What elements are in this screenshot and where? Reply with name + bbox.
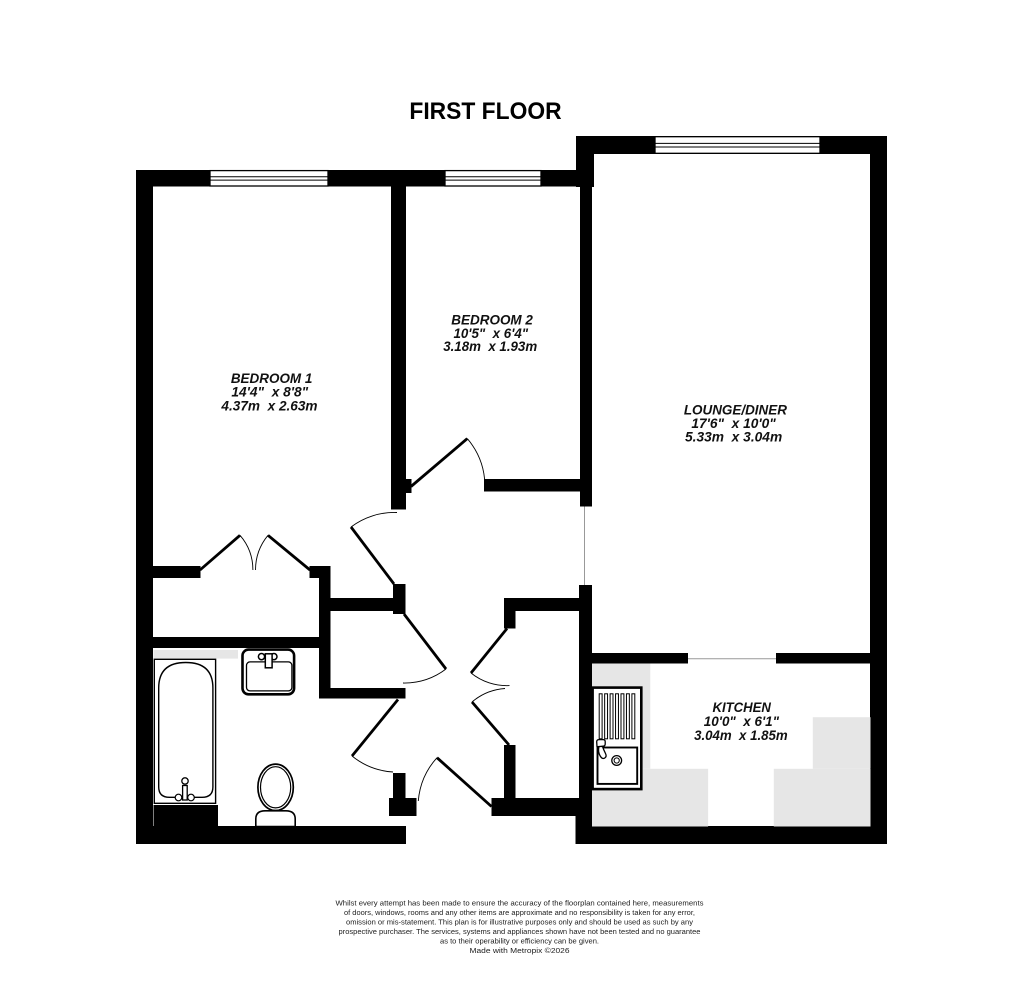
- svg-text:of doors, windows, rooms and a: of doors, windows, rooms and any other i…: [344, 908, 695, 917]
- svg-text:3.18m x 1.93m: 3.18m x 1.93m: [443, 339, 537, 354]
- svg-text:as to their operability or eff: as to their operability or efficiency ca…: [440, 937, 599, 946]
- svg-text:KITCHEN: KITCHEN: [712, 700, 771, 715]
- svg-text:Whilst every attempt has been: Whilst every attempt has been made to en…: [336, 899, 704, 908]
- svg-text:FIRST FLOOR: FIRST FLOOR: [409, 98, 561, 125]
- svg-text:3.04m x 1.85m: 3.04m x 1.85m: [694, 728, 788, 743]
- svg-text:omission or mis-statement. Thi: omission or mis-statement. This plan is …: [346, 918, 693, 927]
- svg-text:prospective purchaser. The ser: prospective purchaser. The services, sys…: [339, 927, 701, 936]
- svg-text:4.37m x 2.63m: 4.37m x 2.63m: [220, 399, 317, 414]
- svg-text:5.33m x 3.04m: 5.33m x 3.04m: [685, 429, 782, 444]
- svg-text:14'4" x 8'8": 14'4" x 8'8": [231, 385, 308, 400]
- svg-text:10'0" x 6'1": 10'0" x 6'1": [704, 714, 780, 729]
- svg-text:Made with Metropix ©2026: Made with Metropix ©2026: [470, 946, 570, 955]
